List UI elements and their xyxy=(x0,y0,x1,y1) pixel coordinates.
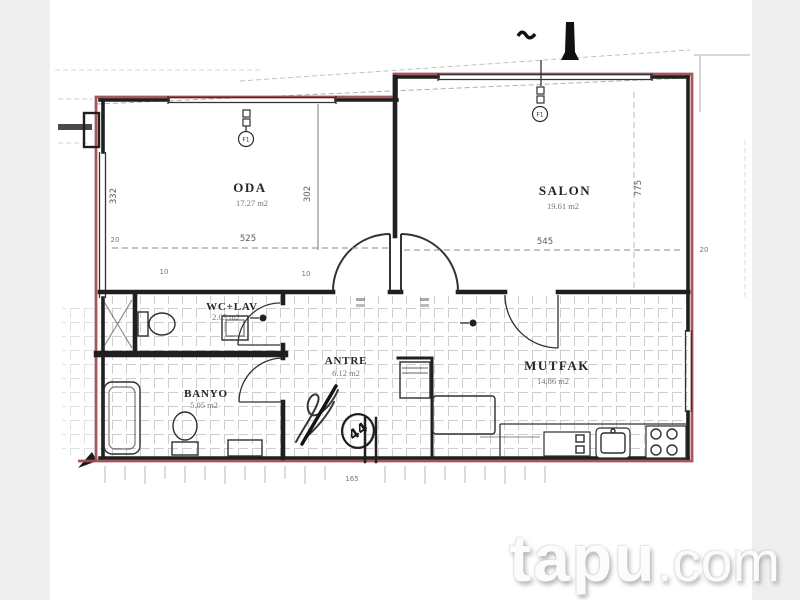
room-antre-label: ANTRE xyxy=(325,355,368,367)
room-oda: ODA 17.27 m2 xyxy=(233,180,268,208)
tiny-dim-mark xyxy=(356,298,365,301)
window-tag-oda-group: F1 xyxy=(239,110,254,147)
door-arc-oda xyxy=(333,234,390,291)
window-left-wall xyxy=(100,152,106,298)
dim-oda-height-right: 302 xyxy=(303,186,313,202)
door-arc-salon xyxy=(401,234,458,291)
room-wc-lav-area: 2.05 m2 xyxy=(212,312,240,322)
window-salon xyxy=(438,73,652,81)
window-mullion-box xyxy=(243,110,250,117)
tiny-dim-mark xyxy=(356,304,365,307)
dim-wall-10b: 10 xyxy=(302,270,311,278)
room-salon: SALON 19.61 m2 xyxy=(539,183,591,211)
tapu-watermark: tapu.com xyxy=(509,520,780,596)
room-mutfak-label: MUTFAK xyxy=(524,358,590,373)
detail-marker xyxy=(470,320,477,327)
tiny-dim-mark xyxy=(420,304,429,307)
tapu-watermark-brand: tapu xyxy=(509,521,656,595)
tapu-watermark-suffix: .com xyxy=(656,530,780,594)
room-salon-label: SALON xyxy=(539,183,591,198)
left-outside-bar xyxy=(58,124,92,130)
window-mullion-box xyxy=(243,119,250,126)
room-banyo-area: 5.05 m2 xyxy=(190,400,218,410)
room-salon-area: 19.61 m2 xyxy=(547,201,579,211)
room-antre-area: 6.12 m2 xyxy=(332,368,360,378)
outer-corner-lines xyxy=(694,55,750,112)
window-tag-label: F1 xyxy=(242,137,249,144)
dim-oda-height-left: 332 xyxy=(109,188,119,204)
dim-wall-20: 20 xyxy=(111,236,120,244)
window-tag-salon-group: F1 xyxy=(533,60,548,122)
bottom-tick-marks xyxy=(105,466,545,484)
dim-entry-span: 165 xyxy=(345,475,358,483)
dim-oda-width: 525 xyxy=(240,234,256,244)
room-oda-area: 17.27 m2 xyxy=(236,198,268,208)
window-mullion-box xyxy=(537,96,544,103)
tiny-dim-mark xyxy=(420,298,429,301)
dim-wall-10: 10 xyxy=(160,268,169,276)
window-mullion-box xyxy=(537,87,544,94)
detail-marker xyxy=(260,315,267,322)
window-tag-label: F1 xyxy=(536,112,543,119)
room-mutfak-area: 14.86 m2 xyxy=(537,376,569,386)
dim-salon-width: 545 xyxy=(537,237,553,247)
room-banyo-label: BANYO xyxy=(184,388,228,400)
letter-fragment-stem xyxy=(561,22,579,60)
dim-salon-height-right: 775 xyxy=(634,180,644,196)
floorplan-scan-page: F1 F1 xyxy=(0,0,800,600)
tile-hatch-outside-left xyxy=(62,305,97,455)
floor-plan-drawing: F1 F1 xyxy=(0,0,800,600)
dim-wall-20b: 20 xyxy=(700,246,709,254)
room-oda-label: ODA xyxy=(233,180,266,195)
roof-dashed-line-2 xyxy=(240,50,690,81)
letter-fragment-tilde xyxy=(518,32,535,38)
